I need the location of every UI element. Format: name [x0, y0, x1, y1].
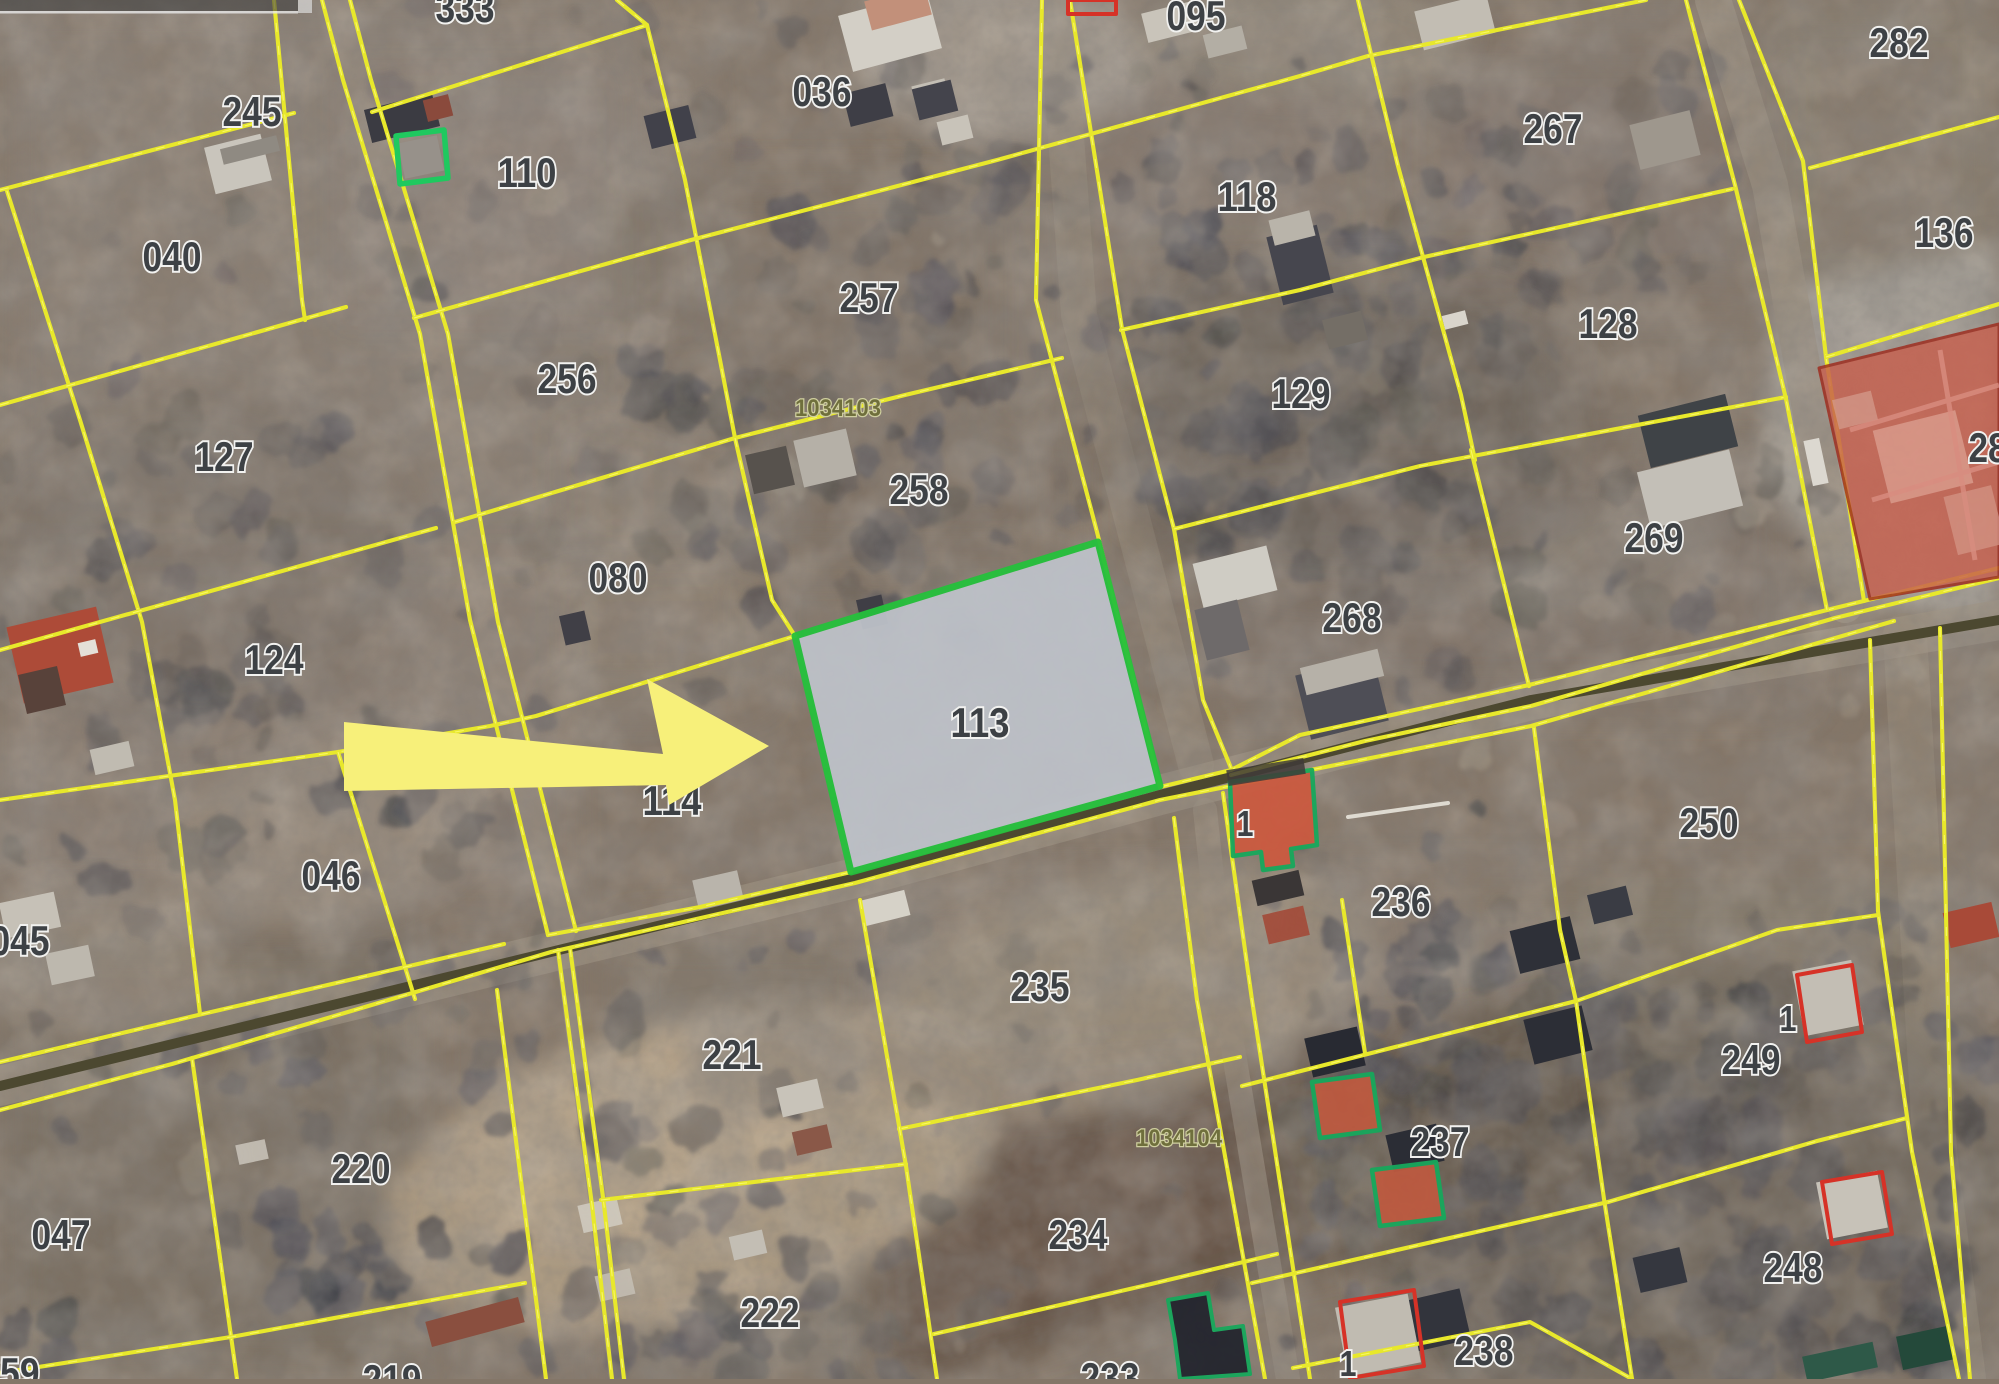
svg-text:221: 221 — [703, 1031, 762, 1078]
svg-text:046: 046 — [302, 852, 361, 899]
svg-text:237: 237 — [1411, 1118, 1470, 1165]
svg-text:118: 118 — [1218, 173, 1277, 220]
svg-text:282: 282 — [1870, 19, 1929, 66]
svg-text:080: 080 — [589, 554, 648, 601]
svg-text:269: 269 — [1625, 514, 1684, 561]
svg-text:250: 250 — [1680, 799, 1739, 846]
svg-text:113: 113 — [951, 699, 1010, 746]
svg-text:759: 759 — [0, 1349, 40, 1379]
svg-text:219: 219 — [363, 1356, 422, 1379]
svg-text:268: 268 — [1323, 594, 1382, 641]
svg-text:127: 127 — [195, 433, 254, 480]
svg-text:245: 245 — [223, 88, 282, 135]
svg-text:1034103: 1034103 — [795, 395, 881, 422]
svg-text:036: 036 — [793, 68, 852, 115]
svg-text:095: 095 — [1167, 0, 1226, 39]
svg-text:256: 256 — [538, 355, 597, 402]
svg-text:1034104: 1034104 — [1136, 1125, 1223, 1152]
svg-text:248: 248 — [1764, 1244, 1823, 1291]
svg-text:136: 136 — [1915, 209, 1974, 256]
svg-text:267: 267 — [1524, 105, 1583, 152]
svg-text:129: 129 — [1272, 370, 1331, 417]
svg-text:220: 220 — [332, 1145, 391, 1192]
svg-text:1: 1 — [1340, 1343, 1357, 1379]
svg-text:128: 128 — [1579, 300, 1638, 347]
svg-text:333: 333 — [436, 0, 495, 31]
svg-text:249: 249 — [1722, 1036, 1781, 1083]
svg-text:1: 1 — [1237, 803, 1254, 844]
svg-text:258: 258 — [890, 466, 949, 513]
svg-text:28: 28 — [1969, 424, 1999, 471]
svg-text:1: 1 — [1780, 998, 1797, 1039]
svg-text:234: 234 — [1049, 1211, 1109, 1258]
svg-text:045: 045 — [0, 917, 50, 964]
svg-text:047: 047 — [32, 1211, 91, 1258]
svg-text:235: 235 — [1011, 963, 1070, 1010]
svg-text:233: 233 — [1081, 1354, 1140, 1379]
svg-text:236: 236 — [1372, 878, 1431, 925]
svg-text:124: 124 — [245, 636, 305, 683]
svg-text:222: 222 — [741, 1289, 800, 1336]
svg-text:040: 040 — [143, 233, 202, 280]
svg-text:257: 257 — [840, 274, 899, 321]
svg-text:238: 238 — [1455, 1327, 1514, 1374]
svg-text:110: 110 — [498, 149, 557, 196]
